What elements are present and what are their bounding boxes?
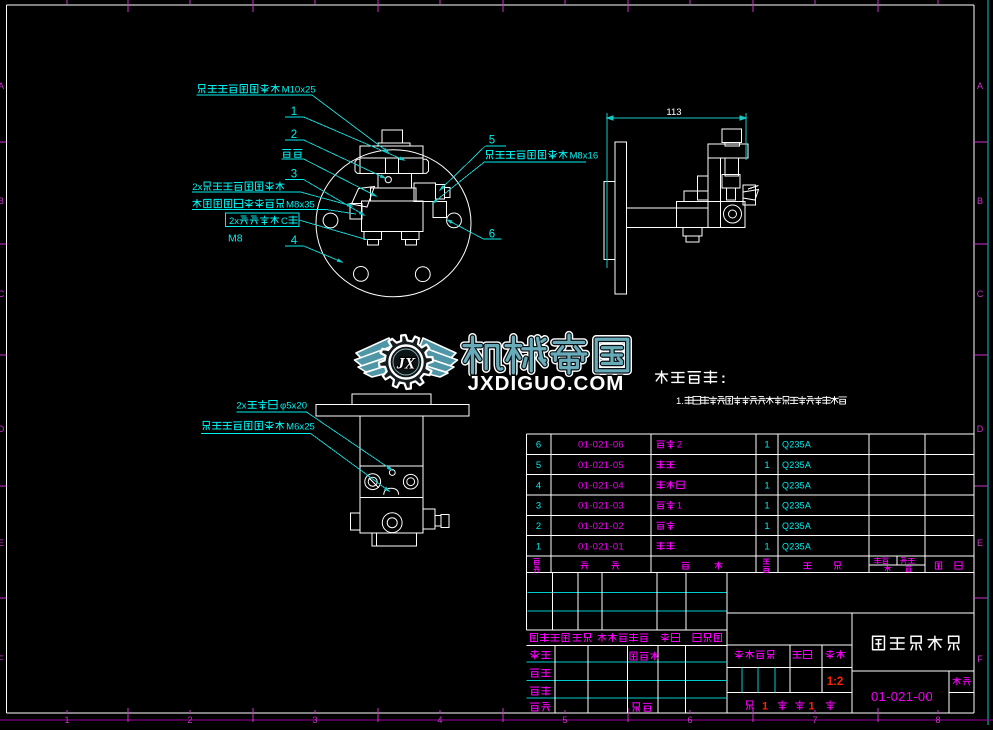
svg-text:5: 5	[562, 715, 567, 725]
svg-text:JXDIGUO.COM: JXDIGUO.COM	[468, 372, 625, 395]
svg-text:C: C	[281, 216, 288, 227]
svg-text:1: 1	[677, 501, 682, 512]
svg-text:1: 1	[764, 501, 769, 512]
svg-text:Q235A: Q235A	[782, 440, 811, 450]
svg-text:2x: 2x	[229, 216, 239, 227]
svg-text:D: D	[977, 424, 984, 434]
svg-text:M10x25: M10x25	[282, 85, 316, 96]
svg-text:1: 1	[764, 460, 769, 471]
svg-text:4: 4	[437, 715, 442, 725]
svg-text:01-021-00: 01-021-00	[871, 689, 933, 704]
svg-text:4: 4	[536, 480, 541, 491]
svg-text:2: 2	[536, 521, 541, 532]
svg-text:C: C	[0, 289, 5, 299]
svg-text:C: C	[977, 289, 984, 299]
svg-text:1: 1	[764, 440, 769, 451]
svg-text:2x: 2x	[192, 182, 202, 193]
svg-text:3: 3	[312, 715, 317, 725]
svg-text:1:2: 1:2	[827, 676, 844, 688]
svg-text:Q235A: Q235A	[782, 521, 811, 531]
svg-text:M8: M8	[228, 233, 243, 245]
svg-text:1: 1	[808, 701, 814, 713]
svg-text::: :	[721, 371, 726, 387]
svg-text:E: E	[977, 538, 983, 548]
svg-text:113: 113	[666, 107, 681, 118]
svg-text:7: 7	[812, 715, 817, 725]
svg-text:6: 6	[536, 440, 541, 451]
svg-text:5: 5	[489, 135, 495, 147]
svg-text:M6x25: M6x25	[286, 421, 315, 432]
svg-text:1: 1	[764, 521, 769, 532]
svg-text:F: F	[977, 654, 983, 664]
svg-text:01-021-03: 01-021-03	[578, 501, 624, 512]
svg-text:Q235A: Q235A	[782, 501, 811, 511]
svg-text:1: 1	[762, 701, 768, 713]
svg-text:2x: 2x	[236, 401, 246, 412]
svg-text:B: B	[977, 196, 983, 206]
svg-text:01-021-06: 01-021-06	[578, 440, 624, 451]
svg-text:Q235A: Q235A	[782, 460, 811, 470]
svg-text:01-021-02: 01-021-02	[578, 521, 624, 532]
svg-text:Q235A: Q235A	[782, 541, 811, 551]
svg-text:1: 1	[764, 541, 769, 552]
svg-text:1: 1	[64, 715, 69, 725]
svg-text:8: 8	[935, 715, 940, 725]
svg-text:01-021-04: 01-021-04	[578, 480, 624, 491]
svg-text:D: D	[0, 424, 5, 434]
svg-text:01-021-05: 01-021-05	[578, 460, 624, 471]
svg-text:2: 2	[677, 440, 682, 451]
svg-text:JX: JX	[396, 356, 416, 373]
svg-text:3: 3	[536, 501, 541, 512]
svg-text:6: 6	[687, 715, 692, 725]
svg-text:2: 2	[187, 715, 192, 725]
svg-text:F: F	[0, 654, 4, 664]
svg-text:1: 1	[764, 480, 769, 491]
svg-text:B: B	[0, 196, 4, 206]
svg-text:Q235A: Q235A	[782, 480, 811, 490]
svg-text:M8x35: M8x35	[286, 199, 315, 210]
svg-text:φ5x20: φ5x20	[280, 401, 307, 412]
svg-text:A: A	[977, 81, 983, 91]
svg-text:A: A	[0, 81, 4, 91]
svg-text:1: 1	[536, 541, 541, 552]
svg-text:E: E	[0, 538, 4, 548]
svg-text:1.: 1.	[676, 396, 684, 407]
svg-text:5: 5	[536, 460, 541, 471]
svg-text:M8x16: M8x16	[569, 151, 598, 162]
svg-text:01-021-01: 01-021-01	[578, 541, 624, 552]
